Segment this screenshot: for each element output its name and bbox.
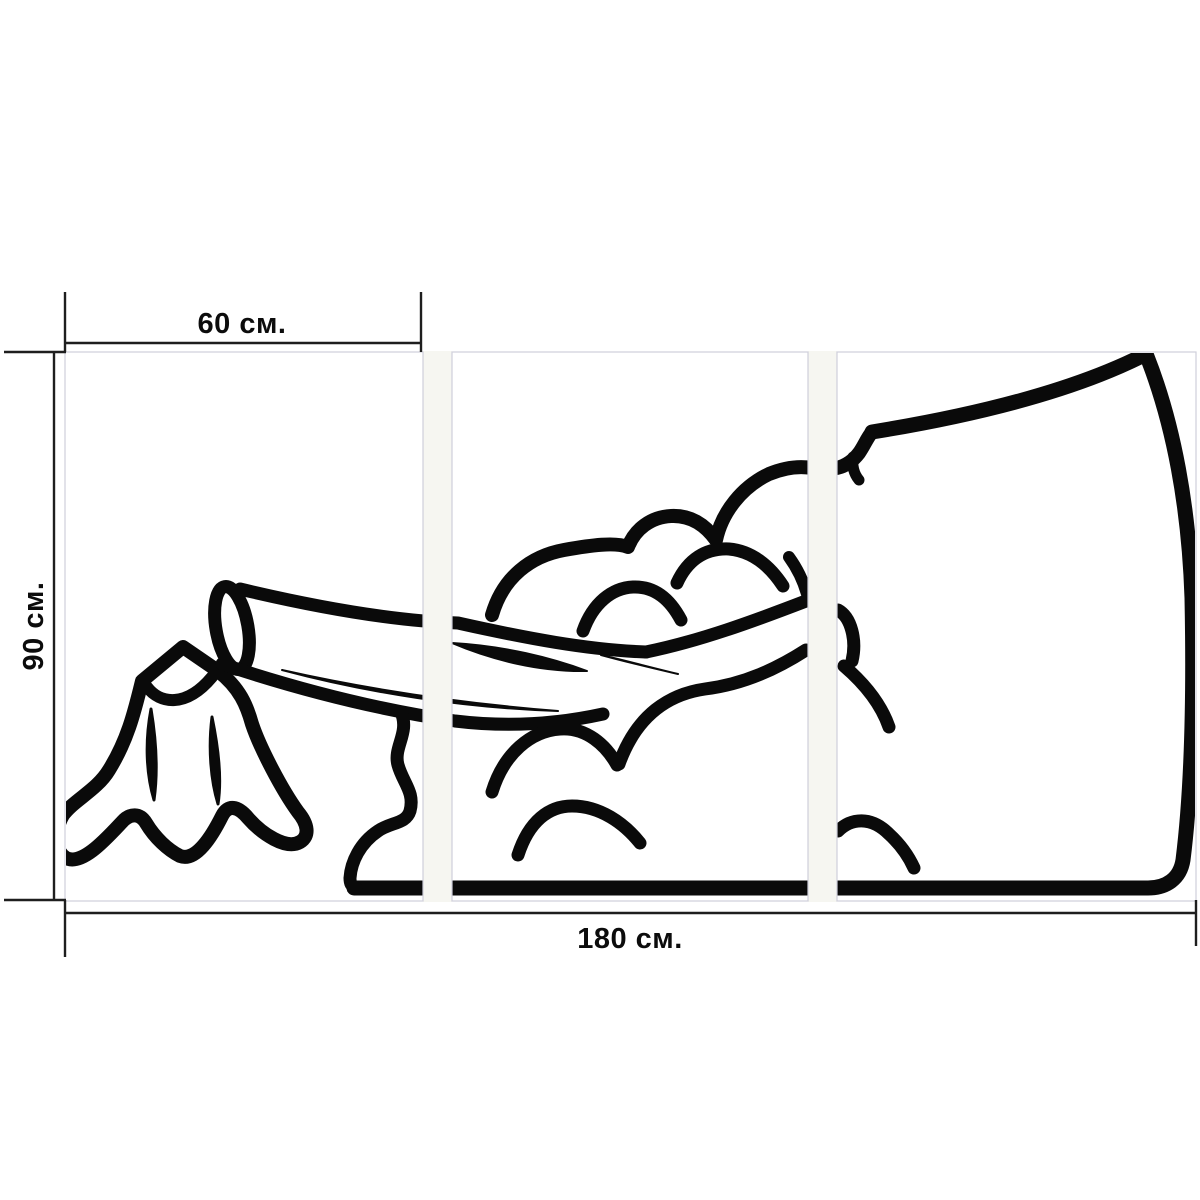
canvas-panels <box>65 352 1196 901</box>
total-width-dimension: 180 см. <box>65 900 1196 957</box>
width-dimension: 60 см. <box>65 292 421 352</box>
height-dimension: 90 см. <box>4 352 66 900</box>
height-dimension-label: 90 см. <box>18 582 50 671</box>
total-width-dimension-label: 180 см. <box>577 923 683 955</box>
width-dimension-label: 60 см. <box>198 308 287 340</box>
triptych-canvas-mockup: 60 см. 90 см. 180 см. <box>0 0 1200 1200</box>
product-mockup: 60 см. 90 см. 180 см. <box>0 0 1200 1200</box>
panel-gap-2 <box>808 351 837 902</box>
panel-gap-1 <box>423 351 452 902</box>
